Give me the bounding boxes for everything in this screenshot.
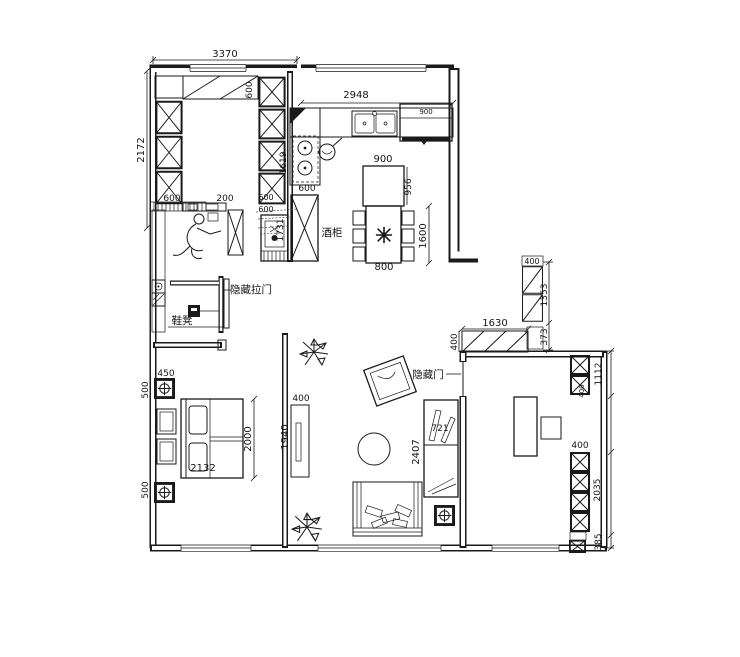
dining-table	[353, 206, 414, 263]
bedside-table-icon	[155, 483, 173, 501]
wall-cabinet	[571, 473, 589, 491]
dim-closet-top-cab: 600	[245, 81, 255, 98]
wardrobe-cabinet	[155, 76, 183, 98]
kitchen-sink	[352, 111, 397, 136]
door-handle-box	[188, 305, 219, 317]
divider-shelf	[291, 405, 309, 477]
wall-cabinet	[571, 493, 589, 511]
fridge-cabinet: 900	[400, 104, 452, 145]
dim-cab2-depth: 400	[571, 441, 588, 451]
dim-dressing-gap: 200	[216, 194, 233, 204]
dim-nightstand-top: 500	[141, 381, 151, 398]
kitchen-counter-left	[290, 108, 320, 185]
dim-kitchen-width: 2948	[343, 90, 368, 101]
floor-plan-canvas: 900	[0, 0, 740, 657]
cloakroom-wardrobes	[150, 76, 285, 211]
mirror	[208, 213, 218, 221]
stove	[293, 136, 318, 182]
wardrobe-cabinet	[156, 137, 181, 169]
label-wine-cabinet: 酒柜	[322, 226, 343, 239]
window-closet-top	[190, 64, 246, 72]
dim-shelf-depth: 721	[431, 424, 448, 434]
label-shoe-bench: 鞋凳	[172, 314, 193, 327]
dim-hall-cab-height: 1353	[540, 284, 550, 307]
corridor-cabinets	[462, 256, 543, 352]
nightstand	[157, 439, 176, 464]
kitchen-island	[363, 166, 404, 206]
dimension-labels: 3370 2172 600 600 200 600 600 1731 2948 …	[136, 49, 604, 551]
dim-cab2-height: 2035	[593, 479, 603, 502]
side-table-icon	[435, 506, 453, 524]
hatch-strip	[261, 251, 288, 261]
dim-divider-depth: 400	[292, 394, 309, 404]
dim-wall-length: 2407	[411, 439, 422, 464]
dim-bed-width: 2132	[190, 463, 215, 474]
dim-br-gap: 385	[594, 533, 604, 550]
dim-cab1-height: 1112	[594, 363, 604, 386]
dim-divider-length: 1940	[280, 424, 291, 449]
wok-pan	[319, 138, 342, 160]
walls	[150, 68, 607, 548]
wardrobe-cabinet	[156, 102, 181, 134]
dim-closet-width: 3370	[212, 49, 237, 60]
dim-wardrobe-depth: 400	[450, 333, 460, 350]
cabinet-filler	[570, 532, 586, 540]
plant-icon	[292, 513, 322, 541]
dim-right-cab-a: 600	[258, 193, 273, 202]
label-hidden-door: 隐藏门	[412, 368, 444, 381]
dim-bed-length: 2000	[243, 426, 254, 451]
stool-cabinet	[228, 210, 243, 255]
floor-plan-drawing: 900	[0, 0, 740, 657]
dim-right-cab-b: 600	[258, 205, 273, 214]
window-living	[318, 545, 441, 552]
bedside-table-icon	[155, 379, 173, 397]
dim-island-depth: 956	[404, 178, 414, 195]
label-hidden-sliding-door: 隐藏拉门	[230, 283, 272, 296]
armchair-rotated	[364, 356, 416, 406]
dim-nightstand-bottom: 500	[141, 481, 151, 498]
corner-marker	[290, 108, 306, 124]
window-bedroom-left	[181, 545, 251, 552]
dim-kitchen-left-run: 1619	[279, 151, 289, 174]
dim-table-width: 800	[374, 262, 393, 273]
window-bedroom-right	[492, 545, 559, 552]
wall-cabinet	[571, 453, 589, 471]
wardrobe-1630	[462, 331, 528, 352]
wall-cabinet	[571, 356, 589, 374]
pocket-door-leaf	[224, 279, 229, 328]
dim-closet-left-cab: 600	[163, 194, 180, 204]
dim-utility-col: 1731	[276, 219, 286, 242]
wardrobe-cabinet	[259, 78, 284, 107]
nightstand	[157, 409, 176, 434]
dim-kitchen-left-cab: 600	[298, 184, 315, 194]
pillow	[189, 406, 207, 434]
dim-hall-gap: 373	[540, 328, 550, 345]
chair	[541, 417, 561, 439]
flower-icon	[376, 227, 392, 243]
tv-shelf-unit	[424, 400, 458, 497]
bedroom-left	[155, 379, 243, 501]
dim-fridge-width: 900	[419, 108, 432, 116]
dim-cab1-depth: 400	[578, 384, 586, 397]
desk	[514, 397, 537, 456]
dim-nightstand-width: 450	[157, 369, 174, 379]
dim-island-width: 900	[373, 154, 392, 165]
dim-table-length: 1600	[418, 223, 429, 248]
dim-closet-depth: 2172	[136, 137, 147, 162]
plant-icon	[300, 339, 328, 365]
dim-hall-cab-depth: 400	[524, 257, 539, 266]
dim-wardrobe-width: 1630	[482, 318, 507, 329]
window-kitchen-top	[316, 64, 426, 72]
wardrobe-cabinet	[259, 110, 284, 139]
sofa	[353, 482, 422, 536]
wall-cabinet	[571, 513, 589, 531]
wine-cabinet	[291, 195, 318, 261]
round-rug	[358, 433, 390, 465]
